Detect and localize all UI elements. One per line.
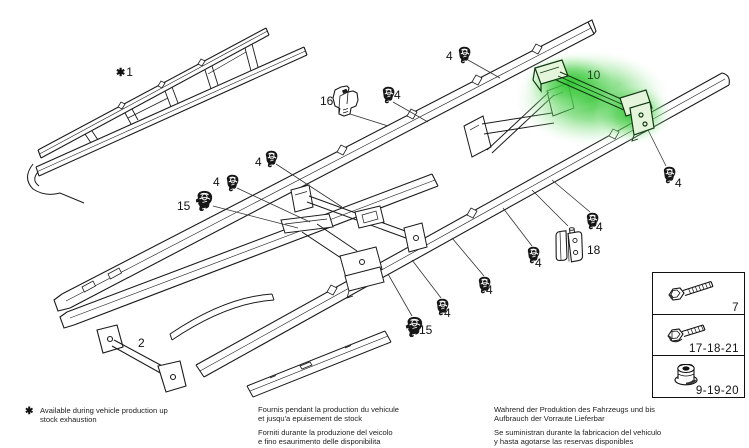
callout-15[interactable]: 15 <box>419 324 432 336</box>
callout-4[interactable]: 4 <box>486 284 493 296</box>
footnote-en: Available during vehicle production up s… <box>40 406 168 424</box>
clip-4-glyph[interactable] <box>383 87 395 104</box>
footnote-fr: Fournis pendant la production du vehicul… <box>258 405 399 423</box>
callout-4[interactable]: 4 <box>675 177 682 189</box>
footnote-de: Wahrend der Produktion des Fahrzeugs und… <box>494 405 655 423</box>
hex-bolt-icon <box>663 276 719 306</box>
footnote-it: Forniti durante la produzione del veicol… <box>258 428 393 446</box>
callout-4[interactable]: 4 <box>596 221 603 233</box>
parts-diagram-stage: ✱1 16 4 4 4 4 15 10 4 4 18 4 4 4 15 2 7 … <box>0 0 749 448</box>
exploded-view-art <box>0 0 749 448</box>
footnote-es: Se suministran durante la fabricacion de… <box>494 428 661 446</box>
legend-label: 9-19-20 <box>696 385 739 397</box>
legend-row-bolt-17-18-21[interactable]: 17-18-21 <box>653 315 744 357</box>
callout-16[interactable]: 16 <box>320 95 333 107</box>
legend-label: 7 <box>732 302 739 314</box>
bracket-18-glyph[interactable] <box>556 228 583 262</box>
chassis-frame-thumbnail[interactable] <box>28 28 308 203</box>
clip-4-glyph[interactable] <box>227 175 239 192</box>
callout-4[interactable]: 4 <box>444 307 451 319</box>
left-side-rail <box>54 20 596 311</box>
callout-frame[interactable]: ✱1 <box>116 66 133 79</box>
legend-row-nut-9-19-20[interactable]: 9-19-20 <box>653 356 744 397</box>
bracket-16-glyph[interactable] <box>333 86 358 116</box>
callout-4[interactable]: 4 <box>535 257 542 269</box>
left-lower-rail <box>60 174 438 340</box>
asterisk-symbol: ✱ <box>116 67 125 79</box>
callout-18[interactable]: 18 <box>587 244 600 256</box>
clip-4-glyph[interactable] <box>266 151 278 168</box>
clip-15-glyph[interactable] <box>196 191 213 211</box>
clip-4-glyph[interactable] <box>664 167 676 184</box>
fastener-legend: 7 17-18-21 9-19-20 <box>652 272 745 398</box>
legend-label: 17-18-21 <box>689 343 739 355</box>
callout-4[interactable]: 4 <box>255 156 262 168</box>
callout-10[interactable]: 10 <box>587 69 600 81</box>
callout-4[interactable]: 4 <box>446 50 453 62</box>
callout-4[interactable]: 4 <box>213 176 220 188</box>
callout-2[interactable]: 2 <box>138 337 145 349</box>
callout-15[interactable]: 15 <box>177 200 190 212</box>
legend-row-bolt-7[interactable]: 7 <box>653 273 744 315</box>
callout-4[interactable]: 4 <box>394 89 401 101</box>
asterisk-symbol: ✱ <box>25 406 33 417</box>
